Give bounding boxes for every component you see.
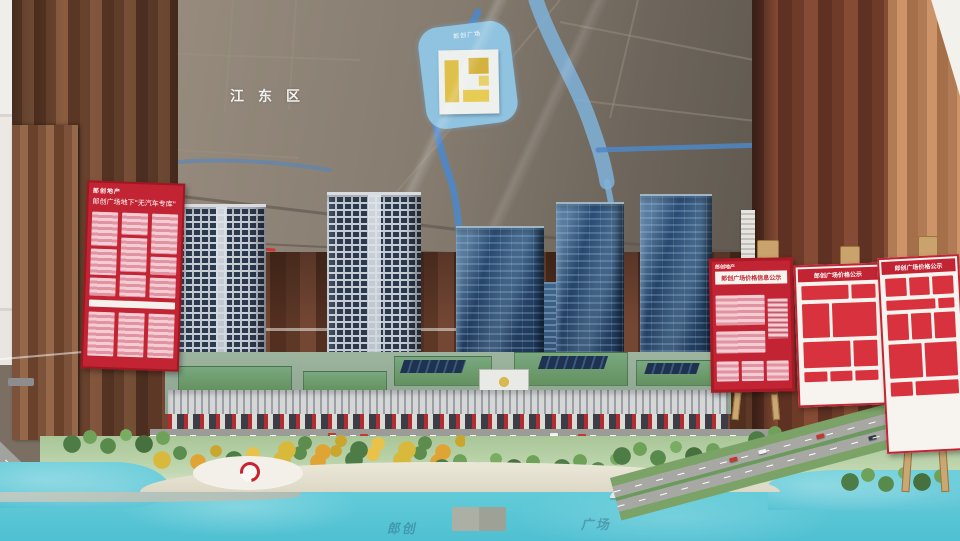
solar-panel-roof bbox=[400, 360, 466, 373]
gold-finial-icon bbox=[670, 172, 684, 196]
solar-panel-roof bbox=[644, 363, 700, 374]
green-roof bbox=[178, 366, 292, 392]
board-table bbox=[798, 280, 882, 387]
gold-finial-icon bbox=[490, 203, 504, 227]
price-board-2: 郎创广场价格公示 bbox=[794, 263, 887, 408]
left-curtain-fold bbox=[12, 125, 78, 440]
podium-facade bbox=[168, 390, 728, 416]
green-roof bbox=[303, 371, 387, 392]
metal-bracket bbox=[8, 378, 34, 386]
water-text-right: 广场 bbox=[580, 514, 614, 533]
board-header: 郎创广场价格信息公示 bbox=[715, 270, 787, 284]
board-table bbox=[89, 212, 178, 299]
water-text-left: 郎创 bbox=[386, 518, 420, 537]
price-board-1: 郎创地产 郎创广场价格信息公示 bbox=[709, 257, 795, 392]
water-name-plate bbox=[452, 507, 506, 531]
model-car bbox=[816, 433, 825, 439]
price-board-3: 郎创广场价格公示 bbox=[877, 254, 960, 454]
podium-storefront-strip bbox=[168, 414, 728, 429]
board-brand-label: 郎创地产 bbox=[93, 186, 179, 198]
board-divider bbox=[89, 299, 175, 309]
board-title: 郎创广场地下"无汽车专库" bbox=[92, 197, 178, 210]
gold-finial-icon bbox=[584, 181, 598, 205]
left-price-board: 郎创地产 郎创广场地下"无汽车专库" bbox=[81, 180, 186, 371]
board-title: 郎创广场价格公示 bbox=[814, 269, 862, 280]
board-title: 郎创广场价格信息公示 bbox=[721, 272, 781, 282]
model-car bbox=[758, 449, 767, 455]
model-car bbox=[868, 435, 877, 441]
gold-finial-icon bbox=[212, 183, 226, 207]
model-car bbox=[729, 456, 738, 462]
board-table bbox=[715, 286, 789, 383]
sales-gallery-photo: 郎创广场 江东区 bbox=[0, 0, 960, 541]
board-table bbox=[882, 271, 960, 401]
solar-panel-roof bbox=[538, 356, 608, 369]
board-title: 郎创广场价格公示 bbox=[894, 261, 942, 273]
gold-finial-icon bbox=[366, 171, 380, 195]
board-table bbox=[87, 311, 174, 358]
board-brand-label: 郎创地产 bbox=[715, 262, 787, 270]
